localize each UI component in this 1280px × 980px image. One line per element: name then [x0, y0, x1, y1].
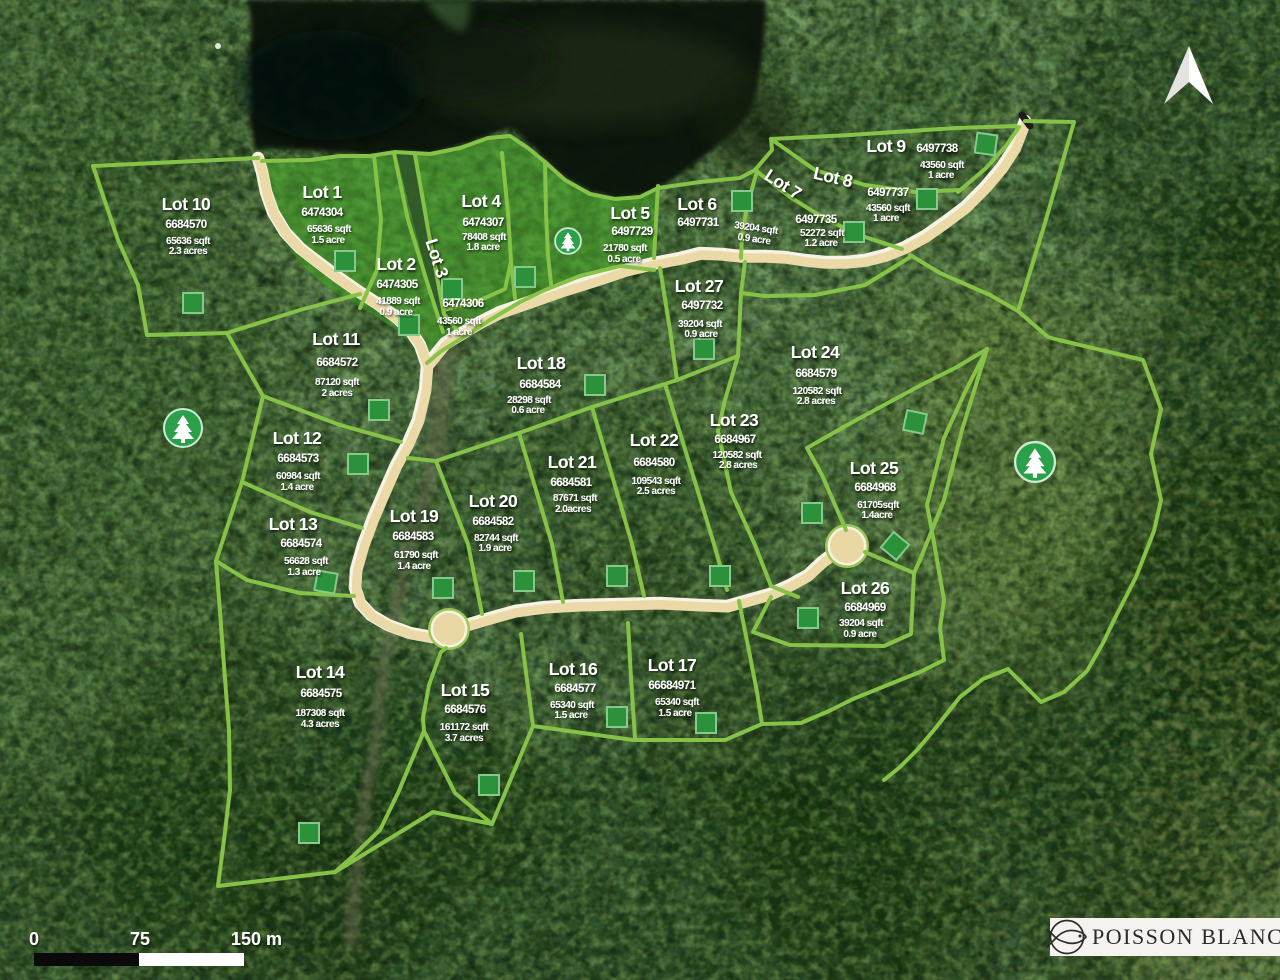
svg-text:43560 sqft: 43560 sqft — [437, 316, 482, 327]
svg-text:2 acres: 2 acres — [322, 388, 354, 399]
svg-text:6684584: 6684584 — [519, 379, 561, 391]
svg-text:1.4 acre: 1.4 acre — [280, 482, 314, 493]
svg-text:0.5 acre: 0.5 acre — [607, 254, 641, 265]
svg-text:65340 sqft: 65340 sqft — [655, 697, 700, 708]
svg-text:6684583: 6684583 — [392, 531, 433, 543]
svg-text:6684968: 6684968 — [854, 482, 896, 494]
svg-text:6684582: 6684582 — [472, 516, 513, 528]
svg-text:1.4acre: 1.4acre — [862, 510, 894, 521]
svg-text:6474304: 6474304 — [301, 207, 343, 219]
svg-text:POISSON BLANC: POISSON BLANC — [1092, 924, 1280, 949]
svg-text:Lot 27: Lot 27 — [675, 276, 724, 296]
svg-text:87671 sqft: 87671 sqft — [553, 493, 598, 504]
svg-text:1.2 acre: 1.2 acre — [804, 238, 838, 249]
svg-text:6497731: 6497731 — [677, 217, 719, 229]
svg-text:1.3 acre: 1.3 acre — [287, 567, 321, 578]
svg-text:Lot 4: Lot 4 — [461, 191, 501, 211]
svg-text:2.0acres: 2.0acres — [555, 504, 592, 515]
svg-text:Lot 21: Lot 21 — [548, 452, 597, 472]
svg-text:0.9 acre: 0.9 acre — [843, 629, 877, 640]
svg-text:Lot 24: Lot 24 — [791, 342, 840, 362]
svg-text:187308 sqft: 187308 sqft — [296, 708, 346, 719]
svg-text:Lot 18: Lot 18 — [517, 353, 566, 373]
svg-text:6497729: 6497729 — [611, 226, 652, 238]
svg-text:6684967: 6684967 — [714, 434, 755, 446]
svg-text:21780 sqft: 21780 sqft — [603, 243, 648, 254]
svg-text:Lot 10: Lot 10 — [162, 194, 211, 214]
svg-text:Lot 22: Lot 22 — [630, 430, 679, 450]
svg-text:Lot 23: Lot 23 — [710, 410, 759, 430]
svg-text:1.9 acre: 1.9 acre — [478, 543, 512, 554]
svg-text:6474307: 6474307 — [462, 217, 503, 229]
svg-text:65636 sqft: 65636 sqft — [307, 224, 352, 235]
svg-text:1.5 acre: 1.5 acre — [554, 710, 588, 721]
svg-text:41889 sqft: 41889 sqft — [376, 296, 421, 307]
svg-text:2.5 acres: 2.5 acres — [637, 486, 676, 497]
svg-text:2.8 acres: 2.8 acres — [797, 396, 836, 407]
svg-text:6684575: 6684575 — [300, 688, 342, 700]
svg-text:0.9 acre: 0.9 acre — [684, 329, 718, 340]
svg-text:4.3 acres: 4.3 acres — [301, 719, 340, 730]
svg-text:0.6 acre: 0.6 acre — [511, 405, 545, 416]
svg-text:Lot 13: Lot 13 — [269, 514, 318, 534]
svg-text:Lot 25: Lot 25 — [850, 458, 899, 478]
svg-text:6497735: 6497735 — [795, 214, 837, 226]
svg-text:1.5 acre: 1.5 acre — [658, 708, 692, 719]
svg-text:Lot 5: Lot 5 — [610, 203, 650, 223]
svg-text:6497732: 6497732 — [681, 300, 722, 312]
svg-text:Lot 14: Lot 14 — [296, 662, 345, 682]
svg-text:Lot 11: Lot 11 — [312, 329, 360, 349]
svg-text:Lot 1: Lot 1 — [302, 182, 342, 202]
svg-text:61790 sqft: 61790 sqft — [394, 550, 439, 561]
svg-text:Lot 26: Lot 26 — [841, 578, 890, 598]
svg-text:1.5 acre: 1.5 acre — [311, 235, 345, 246]
svg-text:56628 sqft: 56628 sqft — [284, 556, 329, 567]
svg-text:60984 sqft: 60984 sqft — [276, 471, 321, 482]
svg-text:2.3 acres: 2.3 acres — [169, 246, 208, 257]
svg-text:1 acre: 1 acre — [928, 170, 955, 181]
svg-text:6684580: 6684580 — [633, 457, 674, 469]
svg-text:Lot 6: Lot 6 — [677, 194, 717, 214]
svg-text:6474305: 6474305 — [376, 279, 418, 291]
svg-text:6497738: 6497738 — [916, 143, 958, 155]
svg-text:1 acre: 1 acre — [446, 327, 473, 338]
svg-text:6684579: 6684579 — [795, 368, 836, 380]
svg-text:Lot 20: Lot 20 — [469, 491, 518, 511]
svg-text:Lot 12: Lot 12 — [273, 428, 322, 448]
svg-text:39204 sqft: 39204 sqft — [839, 618, 884, 629]
svg-text:1.8 acre: 1.8 acre — [466, 242, 500, 253]
svg-text:161172 sqft: 161172 sqft — [440, 722, 490, 733]
svg-text:6684572: 6684572 — [316, 357, 357, 369]
svg-text:0: 0 — [29, 929, 39, 949]
svg-text:0.9 acre: 0.9 acre — [379, 307, 413, 318]
svg-text:6684969: 6684969 — [844, 602, 885, 614]
svg-text:6684577: 6684577 — [554, 683, 595, 695]
svg-text:66684971: 66684971 — [648, 680, 696, 692]
svg-text:1.4 acre: 1.4 acre — [397, 561, 431, 572]
svg-text:Lot 9: Lot 9 — [866, 136, 906, 156]
svg-text:6684570: 6684570 — [165, 219, 206, 231]
svg-text:Lot 2: Lot 2 — [376, 254, 416, 274]
svg-text:2.8 acres: 2.8 acres — [719, 460, 758, 471]
svg-text:6684581: 6684581 — [550, 477, 592, 489]
svg-text:6684574: 6684574 — [280, 538, 322, 550]
svg-text:6684576: 6684576 — [444, 704, 485, 716]
svg-text:Lot 19: Lot 19 — [390, 506, 439, 526]
svg-text:75: 75 — [130, 929, 150, 949]
svg-text:6474306: 6474306 — [442, 298, 483, 310]
svg-text:150 m: 150 m — [231, 929, 282, 949]
svg-text:Lot 17: Lot 17 — [648, 655, 697, 675]
svg-text:6684573: 6684573 — [277, 453, 318, 465]
svg-text:1 acre: 1 acre — [873, 213, 900, 224]
svg-text:6497737: 6497737 — [867, 187, 908, 199]
svg-text:3.7 acres: 3.7 acres — [445, 733, 484, 744]
svg-text:87120 sqft: 87120 sqft — [315, 377, 360, 388]
svg-text:Lot 15: Lot 15 — [441, 680, 490, 700]
svg-text:Lot 16: Lot 16 — [549, 659, 598, 679]
